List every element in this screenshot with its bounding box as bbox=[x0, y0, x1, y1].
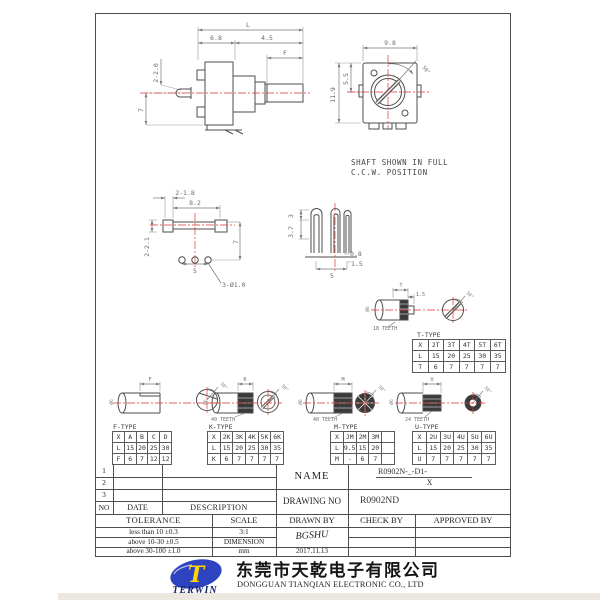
revision-row-1: 1 bbox=[95, 465, 113, 477]
dim-overall-length: L bbox=[246, 21, 250, 29]
spec-cell: L bbox=[208, 443, 221, 454]
f-type-table: XABCDL15202530F671212 bbox=[112, 431, 172, 465]
drawing-no-label: DRAWING NO bbox=[276, 489, 348, 514]
spec-cell: 15 bbox=[428, 351, 444, 362]
spec-cell: 7 bbox=[136, 454, 148, 465]
spec-cell: 12 bbox=[148, 454, 160, 465]
t-shaft-teeth-label: 18 TEETH bbox=[373, 326, 397, 332]
dim-rotation-angle: 50° bbox=[421, 65, 431, 76]
spec-cell: 5K bbox=[258, 432, 271, 443]
spec-cell: L bbox=[331, 443, 344, 454]
front-view: 9.8 5.5 11.9 50° SHAFT SHOWN IN FULL C.C… bbox=[329, 39, 448, 177]
f-shaft-dim: F bbox=[148, 377, 151, 383]
scale-value: 3:1 bbox=[212, 527, 276, 537]
k-type-table-title: K-TYPE bbox=[209, 423, 232, 431]
spec-cell: 7 bbox=[369, 454, 382, 465]
drawn-by-signature: BGSHU bbox=[275, 524, 348, 549]
spec-cell: 30 bbox=[475, 351, 491, 362]
spec-cell: 15 bbox=[426, 443, 440, 454]
spec-cell: L bbox=[413, 351, 429, 362]
engineering-drawing: L 6.8 4.5 F 2-2.0 7 bbox=[95, 13, 511, 465]
spec-row: L1520253035 bbox=[413, 351, 506, 362]
dim-bushing-length: 4.5 bbox=[261, 34, 273, 42]
spec-cell: 6T bbox=[490, 340, 506, 351]
dim-bottom-lug-height: 2-2.1 bbox=[143, 237, 151, 257]
spec-cell: JM bbox=[343, 432, 356, 443]
tolerance-row-1: less than 10 ±0.3 bbox=[95, 527, 212, 537]
k-shaft-angle: 50° bbox=[280, 383, 290, 393]
dim-bottom-holes: 3-Ø1.0 bbox=[222, 281, 246, 289]
spec-cell: 3U bbox=[440, 432, 454, 443]
spec-cell: C bbox=[148, 432, 160, 443]
spec-cell: 6 bbox=[356, 454, 369, 465]
spec-cell: 2T bbox=[428, 340, 444, 351]
spec-cell: 7 bbox=[258, 454, 271, 465]
dim-flat-length: F bbox=[283, 49, 287, 57]
tolerance-header: TOLERANCE bbox=[95, 514, 212, 527]
spec-row: L1520253035 bbox=[413, 443, 496, 454]
u-shaft-view: U 24 TEETH Ø6 50° bbox=[388, 377, 493, 423]
tolerance-row-3: above 30-100 ±1.0 bbox=[95, 547, 212, 556]
shaft-note-line2: C.C.W. POSITION bbox=[351, 168, 428, 177]
f-shaft-view: F Ø6 50° bbox=[108, 377, 229, 414]
spec-cell: 2K bbox=[220, 432, 233, 443]
spec-cell bbox=[382, 443, 395, 454]
check-by-header: CHECK BY bbox=[348, 514, 415, 527]
spec-row: M-67 bbox=[331, 454, 395, 465]
spec-cell: L bbox=[413, 443, 427, 454]
name-value-line2: X bbox=[348, 477, 511, 489]
spec-row: L1520253035 bbox=[208, 443, 284, 454]
spec-row: L9.51520 bbox=[331, 443, 395, 454]
spec-cell: 7 bbox=[440, 454, 454, 465]
spec-cell: 7 bbox=[454, 454, 468, 465]
k-type-table: X2K3K4K5K6KL1520253035K67777 bbox=[207, 431, 284, 465]
description-column-header: DESCRIPTION bbox=[162, 501, 276, 514]
spec-cell bbox=[382, 432, 395, 443]
m-type-table: XJM2M3ML9.51520M-67 bbox=[330, 431, 395, 465]
spec-cell: X bbox=[413, 432, 427, 443]
dim-lug-width: 2-2.0 bbox=[152, 63, 160, 83]
spec-row: X2T3T4T5T6T bbox=[413, 340, 506, 351]
m-shaft-diameter: Ø6 bbox=[297, 399, 304, 405]
side-view: L 6.8 4.5 F 2-2.0 7 bbox=[137, 21, 310, 134]
spec-cell: 35 bbox=[490, 351, 506, 362]
f-shaft-angle: 50° bbox=[219, 381, 229, 391]
t-shaft-dim: T bbox=[399, 283, 402, 289]
spec-cell: 7 bbox=[482, 454, 496, 465]
t-shaft-diameter: Ø6 bbox=[364, 306, 371, 312]
spec-row: L15202530 bbox=[113, 443, 172, 454]
drawing-sheet-page: L 6.8 4.5 F 2-2.0 7 bbox=[0, 0, 600, 600]
dim-terminal-tip: 3 bbox=[287, 214, 295, 218]
m-shaft-view: M 40 TEETH Ø6 50° bbox=[297, 377, 387, 423]
spec-cell: 5U bbox=[468, 432, 482, 443]
u-shaft-dim: U bbox=[430, 377, 433, 383]
spec-row: XABCD bbox=[113, 432, 172, 443]
title-block: 1 2 3 NO DATE DESCRIPTION NAME R0902N-_-… bbox=[95, 465, 511, 556]
spec-cell: F bbox=[113, 454, 125, 465]
shaft-note-line1: SHAFT SHOWN IN FULL bbox=[351, 158, 448, 167]
unit-value: mm bbox=[212, 547, 276, 556]
spec-cell: 30 bbox=[468, 443, 482, 454]
k-shaft-dim: K bbox=[243, 377, 246, 383]
drawing-no-value: R0902ND bbox=[348, 489, 523, 514]
m-type-table-title: M-TYPE bbox=[334, 423, 357, 431]
dim-bottom-pitch: 5 bbox=[193, 267, 197, 275]
spec-cell: 20 bbox=[440, 443, 454, 454]
dim-front-width: 9.8 bbox=[384, 39, 396, 47]
dim-terminal-thickness: 0.8 bbox=[350, 250, 362, 258]
spec-cell: 7 bbox=[245, 454, 258, 465]
spec-cell: 25 bbox=[148, 443, 160, 454]
t-shaft-angle: 50° bbox=[465, 290, 475, 300]
name-label: NAME bbox=[276, 465, 348, 489]
spec-cell: 7 bbox=[426, 454, 440, 465]
u-type-table-title: U-TYPE bbox=[415, 423, 438, 431]
dim-front-upper: 5.5 bbox=[342, 73, 350, 85]
spec-cell: 25 bbox=[454, 443, 468, 454]
dim-terminal-width: 1.5 bbox=[351, 260, 363, 268]
spec-row: X2K3K4K5K6K bbox=[208, 432, 284, 443]
spec-cell: 20 bbox=[444, 351, 460, 362]
spec-cell: U bbox=[413, 454, 427, 465]
spec-cell: 30 bbox=[160, 443, 172, 454]
spec-cell: 4K bbox=[245, 432, 258, 443]
spec-row: X2U3U4U5U6U bbox=[413, 432, 496, 443]
dim-bottom-span: 8.2 bbox=[189, 199, 201, 207]
u-shaft-angle: 50° bbox=[483, 385, 493, 395]
spec-row: U77777 bbox=[413, 454, 496, 465]
spec-cell: 7 bbox=[468, 454, 482, 465]
dim-lower-height: 7 bbox=[137, 108, 145, 112]
spec-cell: 7 bbox=[271, 454, 284, 465]
spec-cell: K bbox=[208, 454, 221, 465]
scale-header: SCALE bbox=[212, 514, 276, 527]
spec-cell: 7 bbox=[444, 362, 460, 373]
tolerance-row-2: above 10-30 ±0.5 bbox=[95, 537, 212, 547]
spec-cell: 7 bbox=[233, 454, 246, 465]
no-column-header: NO bbox=[95, 501, 113, 514]
spec-cell: 6 bbox=[220, 454, 233, 465]
dim-bottom-offset: 7 bbox=[232, 240, 240, 244]
spec-cell: 20 bbox=[369, 443, 382, 454]
spec-cell: 25 bbox=[459, 351, 475, 362]
t-type-table-title: T-TYPE bbox=[417, 331, 440, 339]
company-name-chinese: 东莞市天乾电子有限公司 bbox=[236, 556, 486, 581]
spec-cell: 30 bbox=[258, 443, 271, 454]
revision-row-2: 2 bbox=[95, 477, 113, 489]
t-shaft-tip-dim: 1.5 bbox=[416, 292, 425, 298]
spec-cell: T bbox=[413, 362, 429, 373]
k-shaft-diameter: Ø6 bbox=[202, 399, 209, 405]
m-shaft-dim: M bbox=[341, 377, 344, 383]
spec-cell: 12 bbox=[160, 454, 172, 465]
spec-row: F671212 bbox=[113, 454, 172, 465]
drawn-date: 2017.11.13 bbox=[276, 547, 348, 556]
t-shaft-view: T 1.5 18 TEETH Ø6 50° bbox=[364, 283, 475, 332]
spec-cell: A bbox=[124, 432, 136, 443]
spec-cell: - bbox=[343, 454, 356, 465]
dim-terminal-length: 3.7 bbox=[287, 226, 295, 238]
spec-cell: 7 bbox=[490, 362, 506, 373]
spec-cell: D bbox=[160, 432, 172, 443]
spec-cell: 3M bbox=[369, 432, 382, 443]
spec-cell: 2M bbox=[356, 432, 369, 443]
t-type-table: X2T3T4T5T6TL1520253035T67777 bbox=[412, 339, 506, 373]
dim-body-length: 6.8 bbox=[210, 34, 222, 42]
spec-row: T67777 bbox=[413, 362, 506, 373]
spec-cell: X bbox=[208, 432, 221, 443]
spec-cell: 9.5 bbox=[343, 443, 356, 454]
dim-front-height: 11.9 bbox=[329, 87, 337, 103]
dim-terminal-pitch: 5 bbox=[330, 272, 334, 280]
spec-cell: 4U bbox=[454, 432, 468, 443]
company-name-english: DONGGUAN TIANQIAN ELECTRONIC CO., LTD bbox=[237, 580, 487, 589]
spec-cell: 3T bbox=[444, 340, 460, 351]
spec-cell: X bbox=[413, 340, 429, 351]
spec-cell: M bbox=[331, 454, 344, 465]
terminal-view: 3 3.7 0.8 1.5 5 bbox=[287, 203, 363, 280]
spec-cell: 6K bbox=[271, 432, 284, 443]
spec-cell: 15 bbox=[124, 443, 136, 454]
approved-by-header: APPROVED BY bbox=[415, 514, 511, 527]
spec-cell: 6U bbox=[482, 432, 496, 443]
spec-cell: 35 bbox=[271, 443, 284, 454]
spec-cell: 5T bbox=[475, 340, 491, 351]
spec-cell: X bbox=[113, 432, 125, 443]
spec-cell: 4T bbox=[459, 340, 475, 351]
revision-row-3: 3 bbox=[95, 489, 113, 501]
m-shaft-angle: 50° bbox=[377, 384, 387, 394]
f-type-table-title: F-TYPE bbox=[113, 423, 136, 431]
scan-edge-strip bbox=[58, 593, 600, 600]
spec-cell: 7 bbox=[459, 362, 475, 373]
u-type-table: X2U3U4U5U6UL1520253035U77777 bbox=[412, 431, 496, 465]
spec-cell: 3K bbox=[233, 432, 246, 443]
spec-cell: 15 bbox=[220, 443, 233, 454]
spec-cell: 20 bbox=[136, 443, 148, 454]
k-shaft-view: K 40 TEETH Ø6 50° bbox=[202, 377, 290, 423]
dim-bottom-lugs: 2-1.8 bbox=[175, 189, 195, 197]
spec-row: K67777 bbox=[208, 454, 284, 465]
spec-cell: 35 bbox=[482, 443, 496, 454]
spec-row: XJM2M3M bbox=[331, 432, 395, 443]
spec-cell: 2U bbox=[426, 432, 440, 443]
spec-cell: 15 bbox=[356, 443, 369, 454]
spec-cell bbox=[382, 454, 395, 465]
spec-cell: 20 bbox=[233, 443, 246, 454]
spec-cell: 6 bbox=[428, 362, 444, 373]
bottom-view: 2-1.8 8.2 2-2.1 7 5 3-Ø1.0 bbox=[143, 189, 246, 289]
u-shaft-diameter: Ø6 bbox=[388, 399, 395, 405]
spec-cell: 25 bbox=[245, 443, 258, 454]
f-shaft-diameter: Ø6 bbox=[108, 399, 115, 405]
dimension-label: DIMENSION bbox=[212, 537, 276, 547]
spec-cell: B bbox=[136, 432, 148, 443]
spec-cell: L bbox=[113, 443, 125, 454]
spec-cell: 7 bbox=[475, 362, 491, 373]
spec-cell: 6 bbox=[124, 454, 136, 465]
date-column-header: DATE bbox=[113, 501, 162, 514]
spec-cell: X bbox=[331, 432, 344, 443]
